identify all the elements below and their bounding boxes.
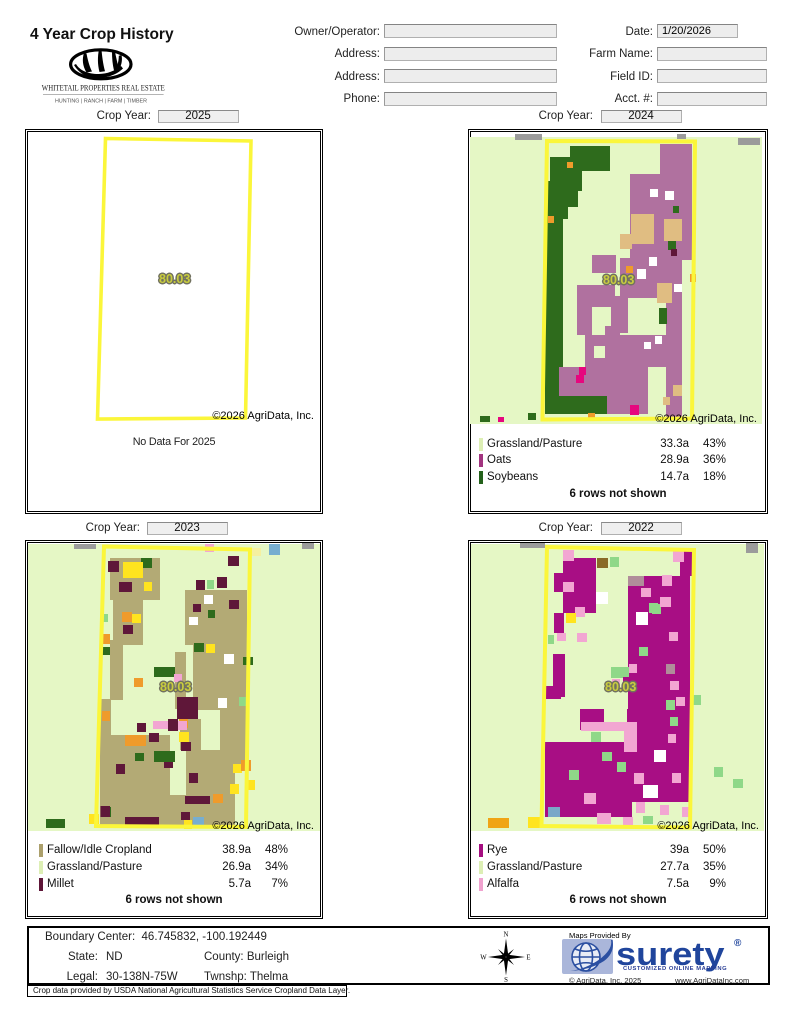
svg-text:W: W [480,954,487,961]
svg-text:HUNTING | RANCH | FARM | TIMBE: HUNTING | RANCH | FARM | TIMBER [55,98,147,104]
svg-text:N: N [504,932,509,939]
svg-text:E: E [526,954,530,961]
svg-text:S: S [504,977,508,983]
svg-text:WHITETAIL PROPERTIES REAL ESTA: WHITETAIL PROPERTIES REAL ESTATE [42,84,165,93]
